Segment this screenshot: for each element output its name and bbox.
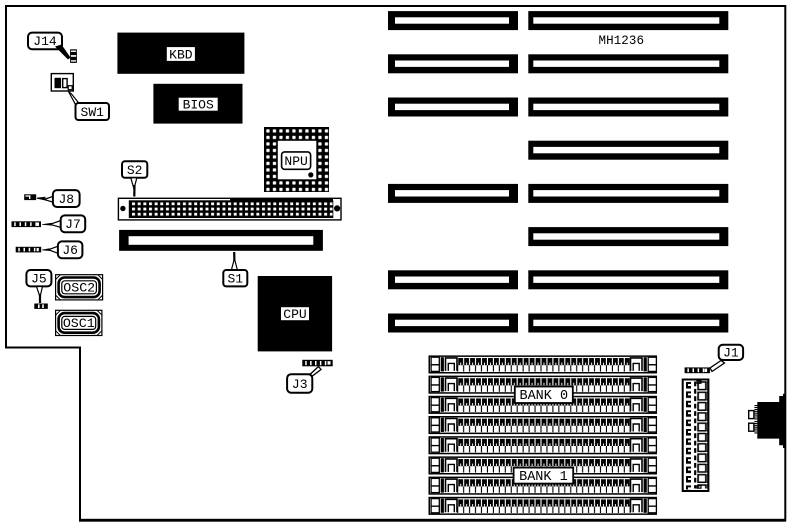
svg-text:BANK 0: BANK 0 xyxy=(519,389,568,404)
svg-text:OSC1: OSC1 xyxy=(63,316,95,331)
svg-text:J6: J6 xyxy=(62,243,78,258)
svg-text:KBD: KBD xyxy=(169,47,193,62)
svg-text:J7: J7 xyxy=(65,217,81,232)
svg-text:NPU: NPU xyxy=(284,154,307,169)
svg-text:MH1236: MH1236 xyxy=(599,34,645,48)
svg-text:J14: J14 xyxy=(33,34,57,49)
svg-text:OSC2: OSC2 xyxy=(63,281,95,296)
svg-text:J3: J3 xyxy=(292,377,308,392)
svg-text:SW1: SW1 xyxy=(81,105,105,120)
svg-text:CPU: CPU xyxy=(283,307,306,322)
svg-text:J1: J1 xyxy=(723,346,739,361)
svg-text:BANK 1: BANK 1 xyxy=(519,470,568,485)
svg-text:J5: J5 xyxy=(31,272,47,287)
svg-text:S1: S1 xyxy=(227,272,243,287)
svg-text:BIOS: BIOS xyxy=(183,98,214,113)
svg-text:S2: S2 xyxy=(127,163,143,178)
svg-text:J8: J8 xyxy=(58,192,74,207)
